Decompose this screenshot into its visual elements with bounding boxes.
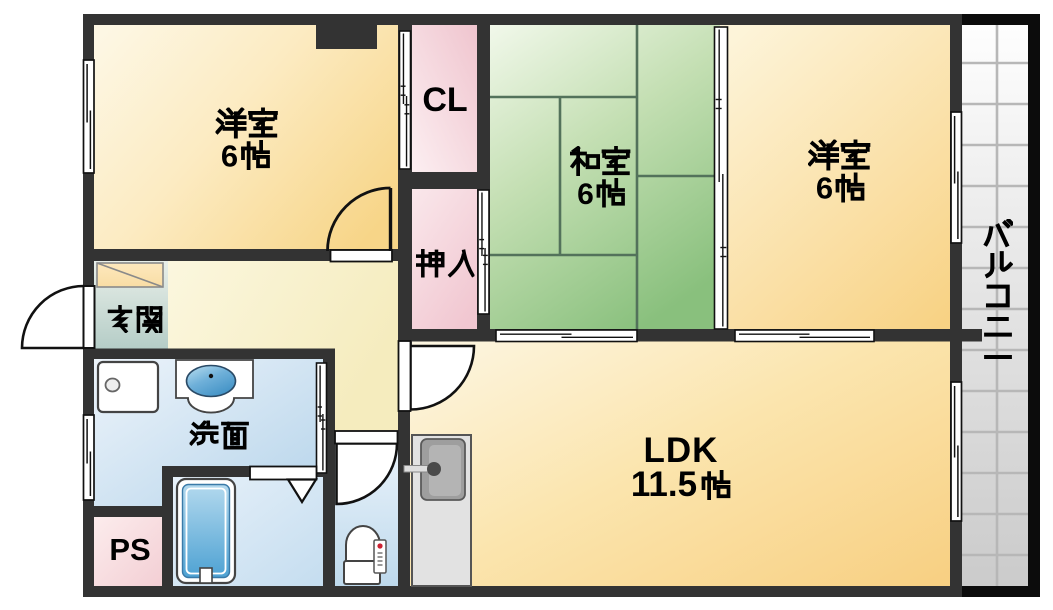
- svg-text:11.5: 11.5: [631, 465, 697, 504]
- svg-text:PS: PS: [109, 532, 150, 567]
- svg-text:6: 6: [221, 139, 238, 174]
- svg-text:CL: CL: [422, 81, 467, 119]
- svg-text:6: 6: [577, 178, 594, 211]
- svg-text:6: 6: [816, 171, 833, 206]
